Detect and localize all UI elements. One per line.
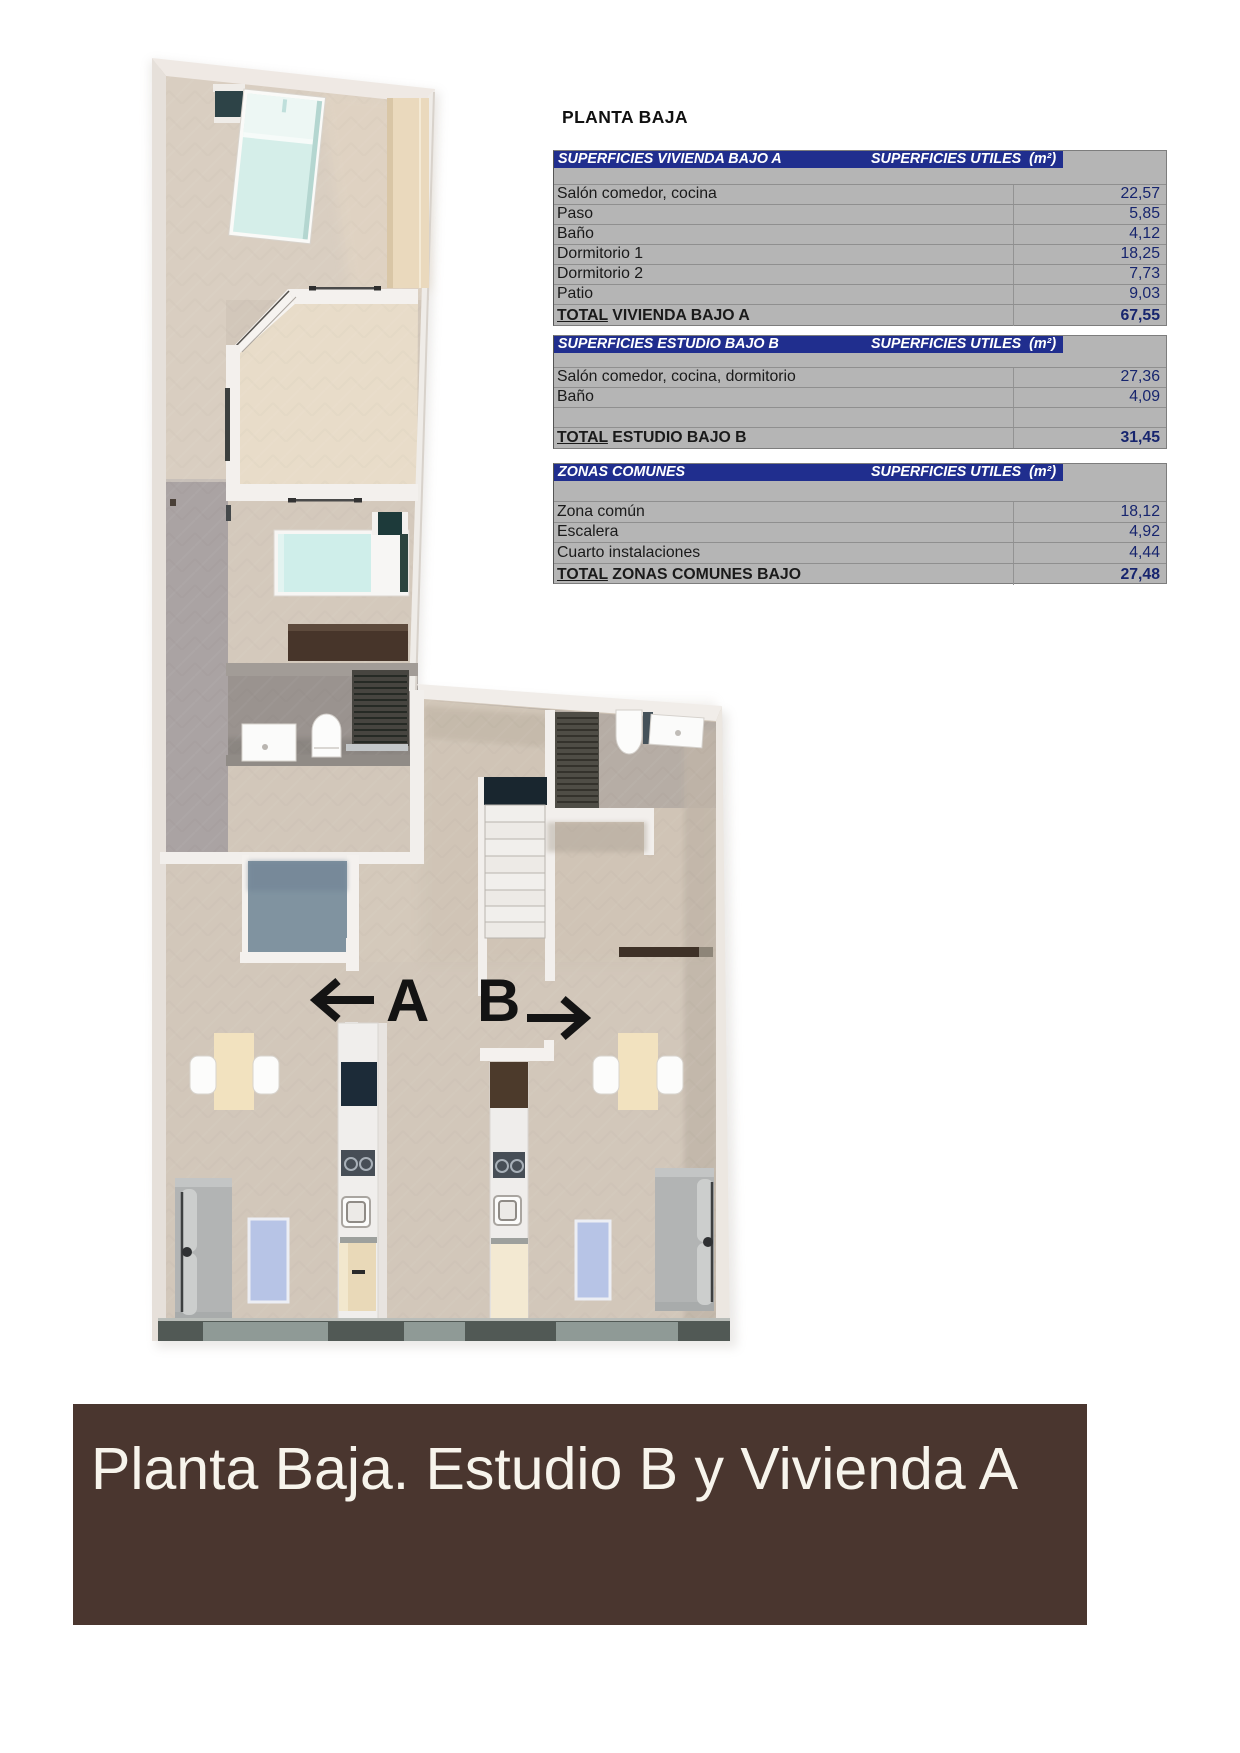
svg-text:B: B <box>477 967 520 1034</box>
svg-text:A: A <box>386 967 429 1034</box>
